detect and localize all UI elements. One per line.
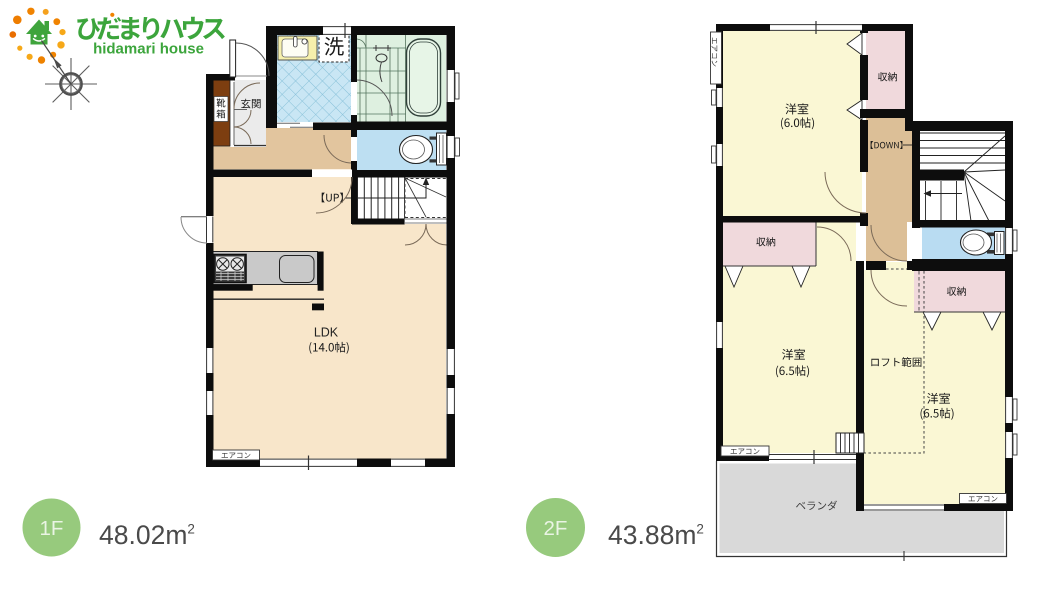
svg-text:48.02m2: 48.02m2 — [99, 520, 195, 550]
svg-text:1F: 1F — [40, 517, 64, 540]
svg-text:2F: 2F — [544, 517, 568, 540]
svg-text:LDK: LDK — [314, 326, 339, 340]
svg-text:43.88m2: 43.88m2 — [608, 520, 704, 550]
svg-text:hidamari house: hidamari house — [93, 41, 204, 58]
